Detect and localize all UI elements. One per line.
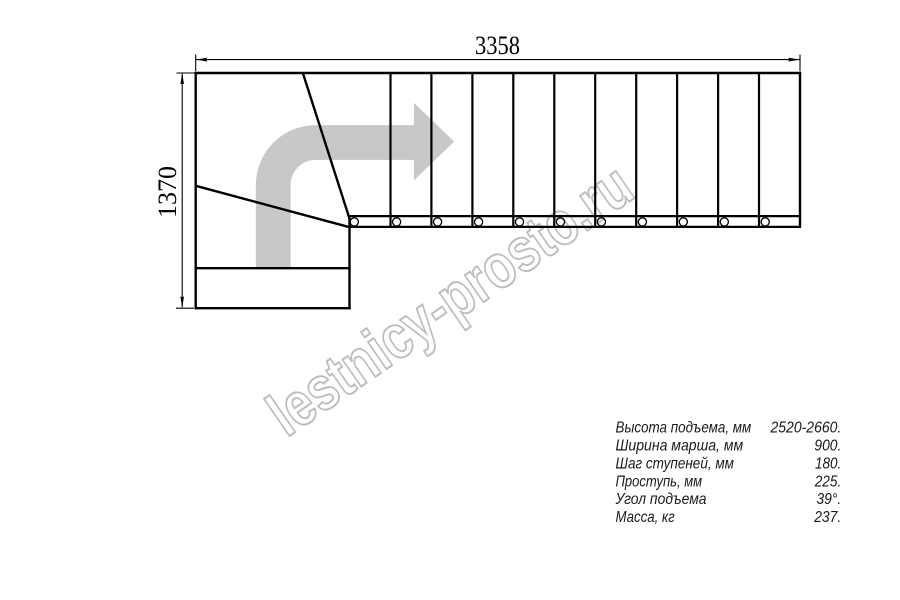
svg-text:2520-2660.: 2520-2660.: [770, 420, 842, 437]
svg-text:Масса, кг: Масса, кг: [616, 509, 675, 526]
svg-text:1370: 1370: [153, 166, 182, 218]
svg-text:900.: 900.: [814, 438, 841, 455]
svg-text:Высота подъема, мм: Высота подъема, мм: [616, 420, 752, 437]
svg-text:Угол подъема: Угол подъема: [615, 491, 707, 508]
svg-text:Проступь, мм: Проступь, мм: [616, 473, 703, 490]
svg-text:225.: 225.: [814, 473, 841, 490]
svg-text:Шаг ступеней, мм: Шаг ступеней, мм: [616, 455, 734, 472]
svg-text:39°.: 39°.: [816, 491, 841, 508]
svg-text:3358: 3358: [475, 31, 520, 60]
svg-text:Ширина марша, мм: Ширина марша, мм: [616, 438, 744, 455]
svg-text:180.: 180.: [815, 455, 841, 472]
svg-text:237.: 237.: [813, 509, 841, 526]
